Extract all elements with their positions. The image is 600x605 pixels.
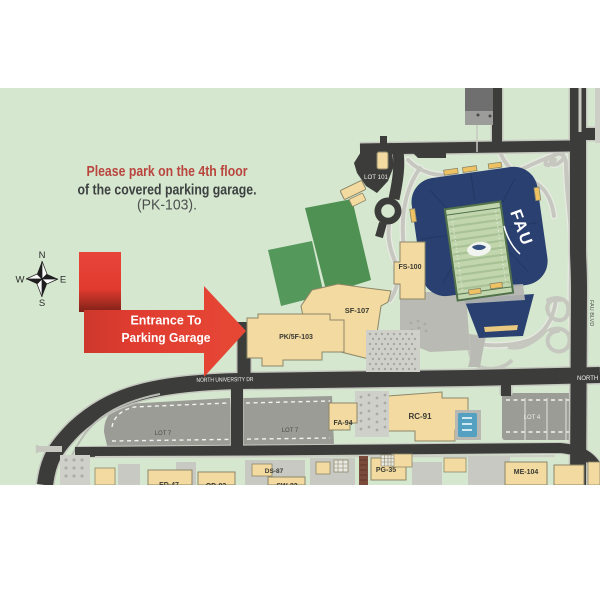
svg-text:(PK-103).: (PK-103). [137,197,197,214]
svg-text:Entrance To: Entrance To [131,313,202,328]
svg-text:Please park on the 4th floor: Please park on the 4th floor [87,164,248,180]
svg-text:W: W [16,275,25,286]
svg-text:RC-91: RC-91 [408,412,432,421]
svg-text:NORTH UNIVERSITY DR: NORTH UNIVERSITY DR [196,377,254,384]
svg-text:LOT 7: LOT 7 [155,431,172,437]
svg-text:SF-107: SF-107 [345,306,370,315]
svg-text:SW-23: SW-23 [276,483,297,490]
svg-text:FA-94: FA-94 [333,420,352,427]
svg-text:PK/5F-103: PK/5F-103 [279,334,313,341]
svg-text:LOT 4: LOT 4 [524,415,541,421]
svg-text:FAU BLVD: FAU BLVD [588,300,594,326]
svg-text:E: E [60,275,66,286]
svg-text:ME-104: ME-104 [514,469,539,476]
svg-text:S: S [39,298,45,309]
svg-text:PG-35: PG-35 [376,467,396,474]
svg-text:FS-100: FS-100 [399,264,422,271]
svg-text:NORTH U: NORTH U [577,376,600,382]
svg-text:ED-47: ED-47 [159,482,179,489]
svg-text:N: N [39,250,46,261]
svg-text:LOT 7: LOT 7 [282,428,299,434]
svg-text:OD-93: OD-93 [206,483,227,490]
svg-text:LOT 101: LOT 101 [364,174,389,181]
svg-text:DS-87: DS-87 [265,468,284,475]
svg-text:Parking Garage: Parking Garage [122,330,211,345]
